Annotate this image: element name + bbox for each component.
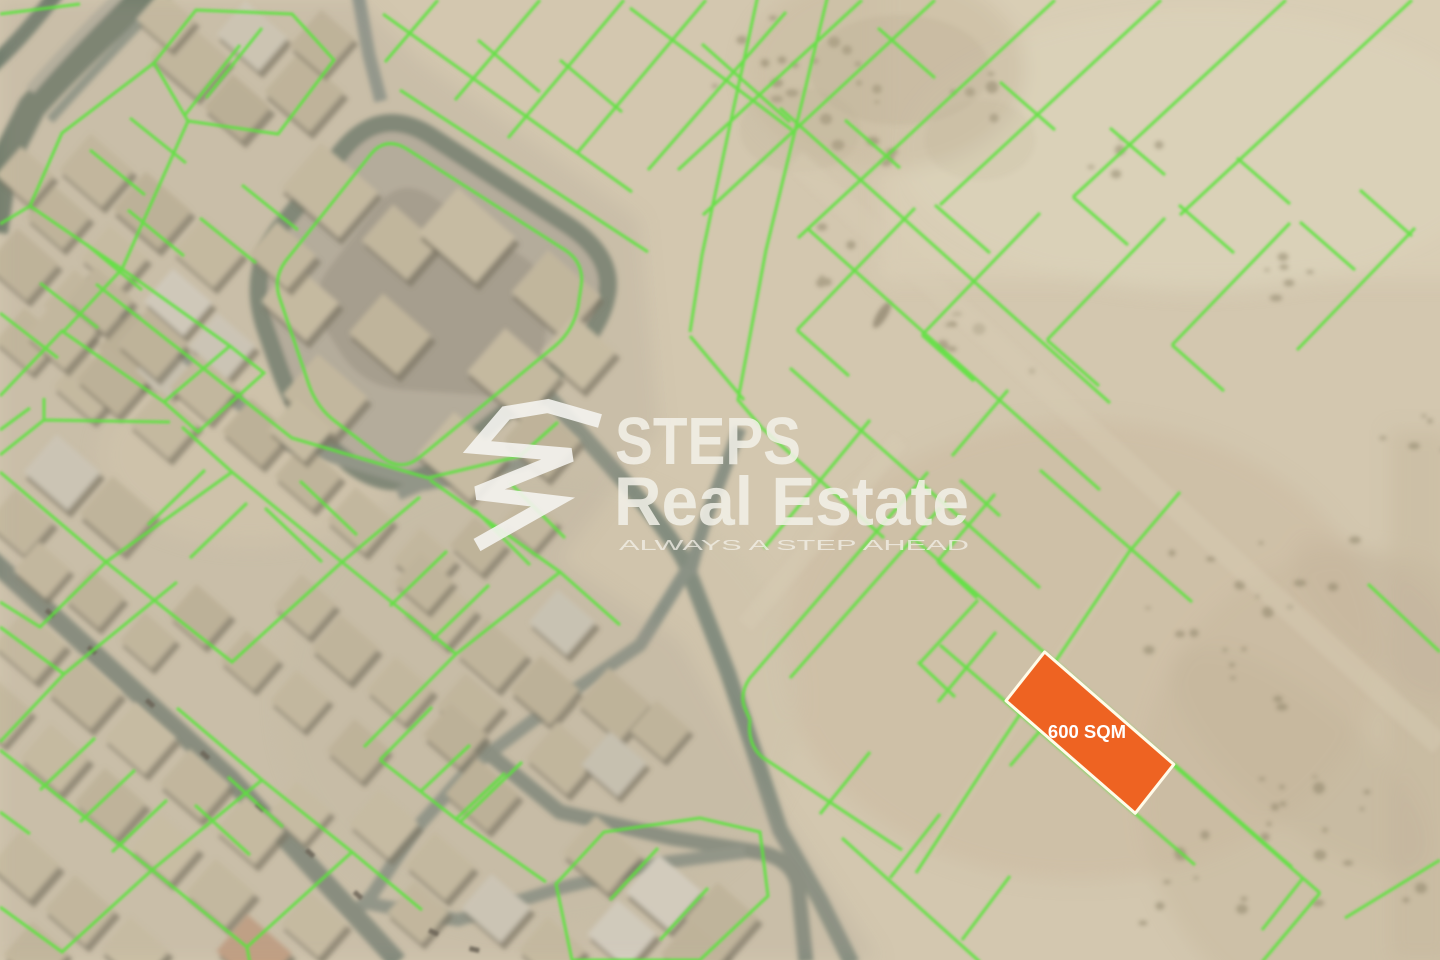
- svg-text:Real Estate: Real Estate: [614, 463, 969, 540]
- svg-text:ALWAYS A STEP AHEAD: ALWAYS A STEP AHEAD: [619, 537, 969, 554]
- svg-text:600 SQM: 600 SQM: [1048, 721, 1126, 742]
